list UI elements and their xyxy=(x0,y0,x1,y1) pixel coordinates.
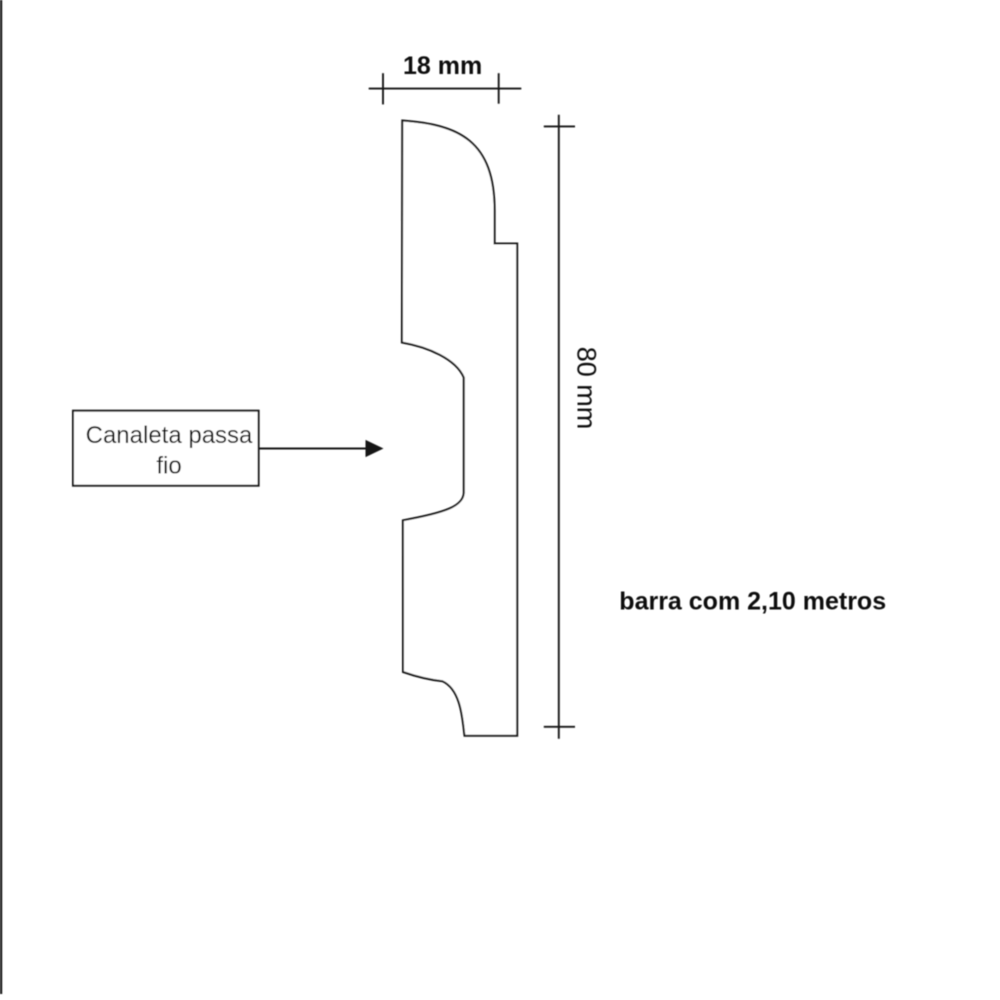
svg-text:80 mm: 80 mm xyxy=(572,347,602,430)
svg-text:18 mm: 18 mm xyxy=(403,52,482,80)
svg-text:fio: fio xyxy=(156,453,181,480)
svg-text:barra com 2,10 metros: barra com 2,10 metros xyxy=(619,588,886,616)
svg-text:Canaleta passa: Canaleta passa xyxy=(86,422,253,449)
